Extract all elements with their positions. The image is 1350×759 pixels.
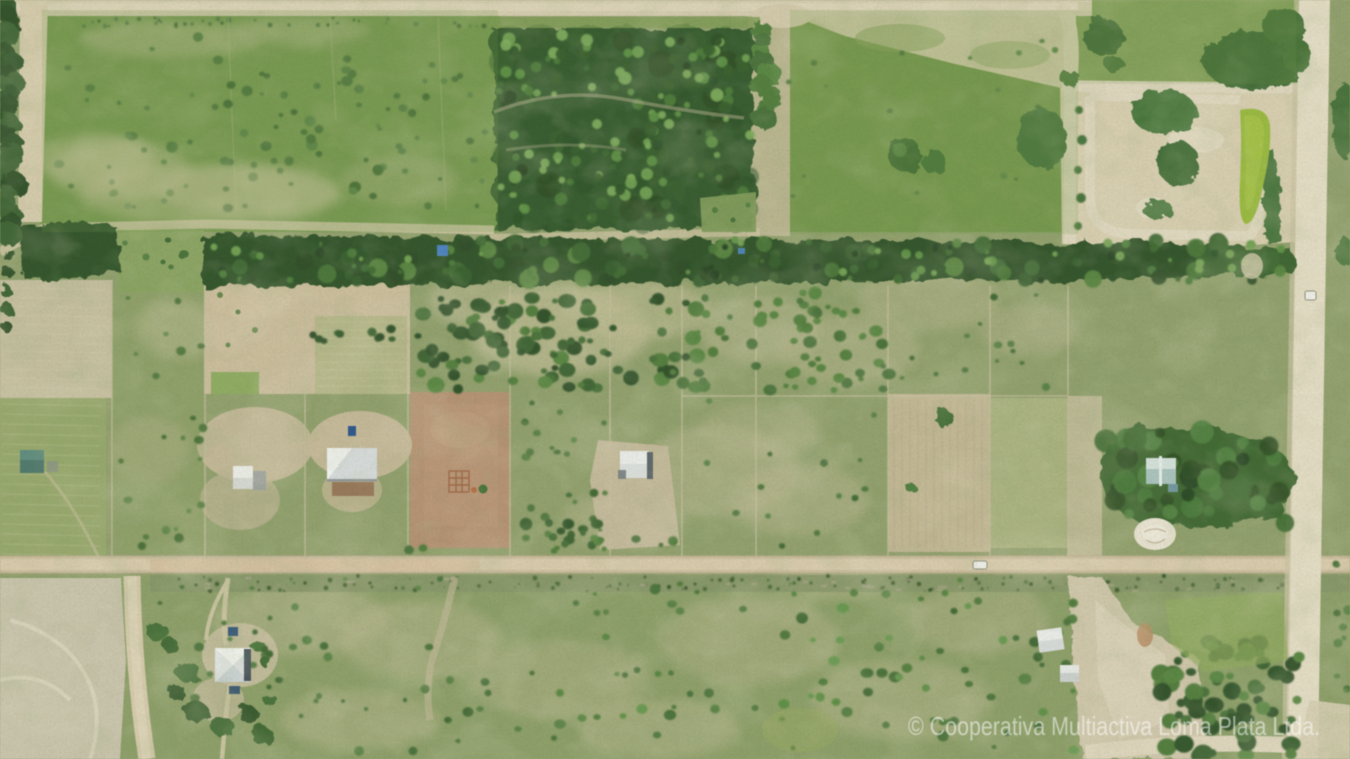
- svg-text:© Cooperativa Multiactiva Loma: © Cooperativa Multiactiva Loma Plata Ltd…: [908, 711, 1320, 741]
